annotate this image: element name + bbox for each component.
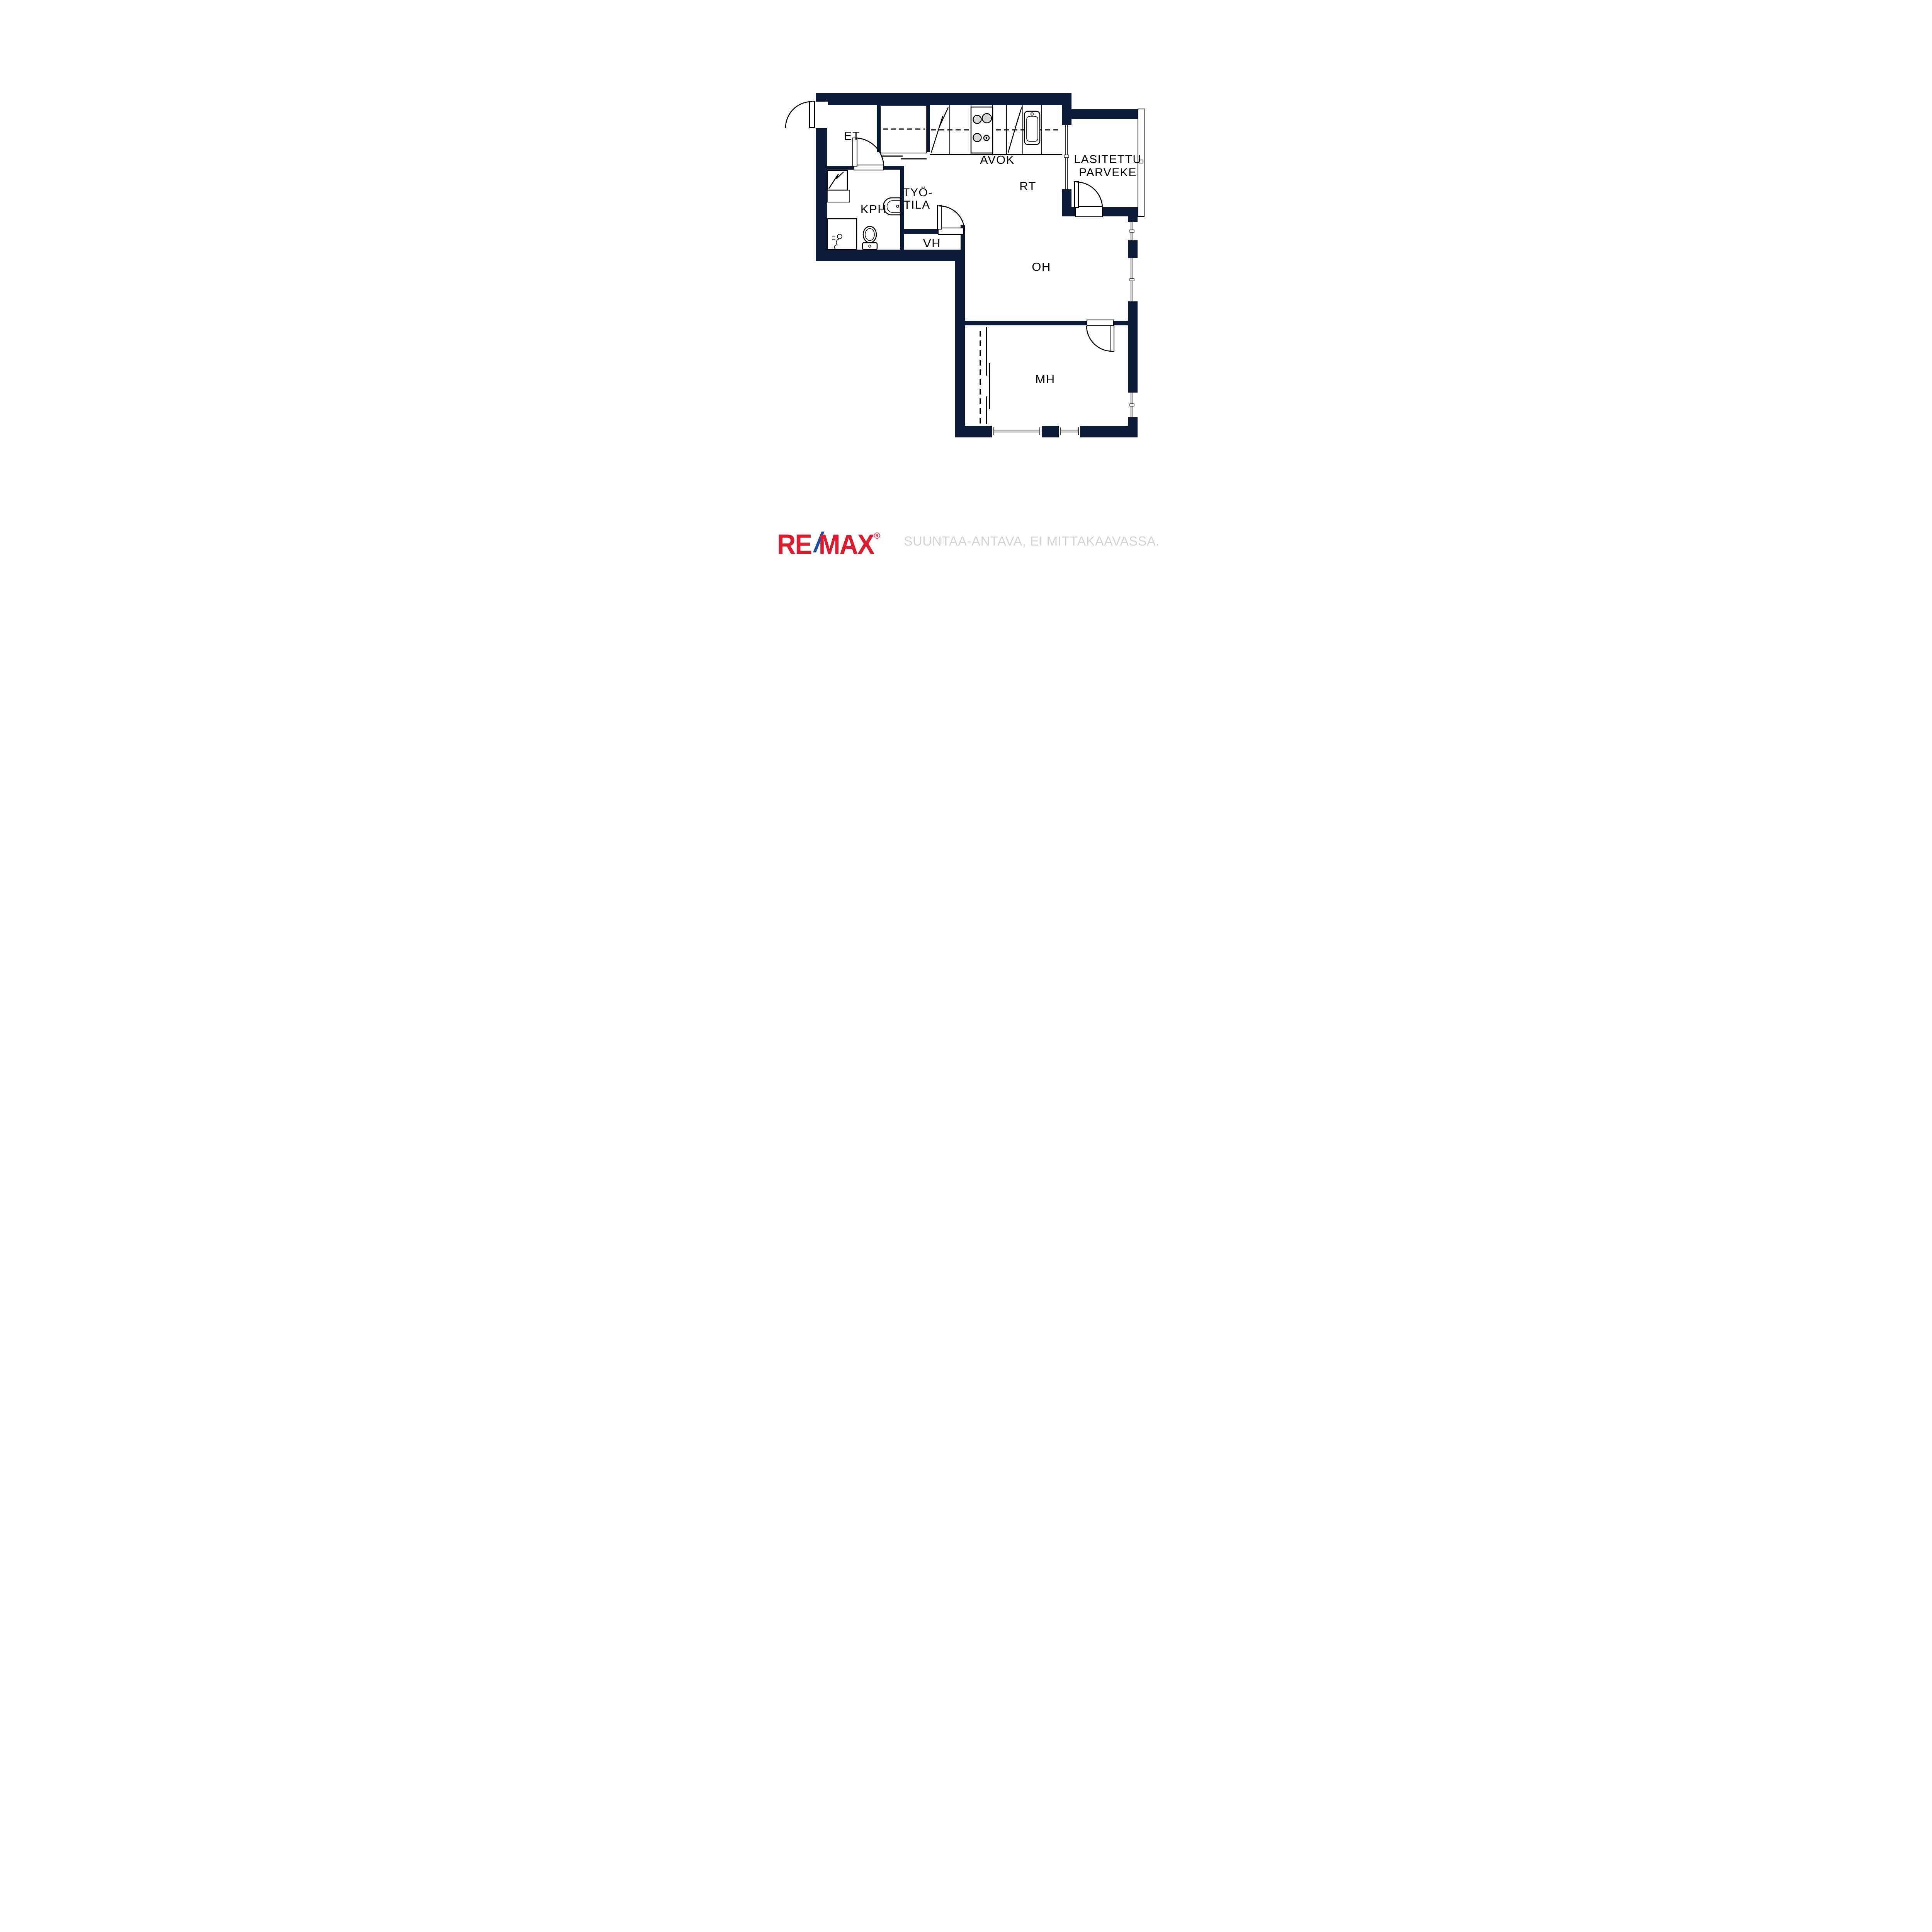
balcony-door-leaf <box>1075 182 1078 207</box>
stove-icon <box>971 107 993 153</box>
front-door <box>786 101 828 128</box>
front-door-gap <box>815 102 828 128</box>
toilet-icon <box>862 226 877 250</box>
balcony-door <box>1075 182 1102 217</box>
washing-machine-icon <box>827 170 850 202</box>
remax-logo: RE/MAX® <box>777 531 880 559</box>
mh-wardrobe <box>980 327 990 424</box>
floorplan-page: ET AVOK LASITETTU PARVEKE KPH TYÖ- TILA … <box>766 0 1166 565</box>
brand-registered-icon: ® <box>874 532 880 540</box>
window-mh-east <box>1126 393 1139 417</box>
window-balcony-west-tick <box>1064 155 1069 158</box>
window-balcony-west <box>1061 125 1072 189</box>
wall-balcony-west-lower <box>1062 189 1071 207</box>
room-label-rt: RT <box>1019 179 1036 193</box>
pillar-et-east <box>927 105 930 152</box>
wall-mh-south <box>955 426 1138 437</box>
floorplan-svg: ET AVOK LASITETTU PARVEKE KPH TYÖ- TILA … <box>766 0 1166 565</box>
mh-door-leaf <box>1110 326 1114 352</box>
room-label-parveke-line2: PARVEKE <box>1079 166 1136 179</box>
room-label-mh: MH <box>1035 372 1055 386</box>
wall-top <box>816 93 1071 105</box>
stove-burner-2 <box>982 114 992 123</box>
mh-door <box>1087 320 1114 352</box>
shower-outline <box>827 219 857 250</box>
pillar-et-west <box>877 105 880 152</box>
et-wardrobe <box>881 105 927 159</box>
room-label-vh: VH <box>923 236 941 250</box>
wall-west-step <box>955 250 965 437</box>
window-oh-a-tick <box>1130 230 1134 232</box>
disclaimer-text: SUUNTAA-ANTAVA, EI MITTAKAAVASSA. <box>904 534 1160 549</box>
wall-balcony-south <box>1062 207 1144 216</box>
mh-door-sill <box>1087 320 1113 326</box>
wall-left-upper <box>816 93 827 102</box>
mh-door-arc <box>1087 326 1112 351</box>
window-mh-south-1 <box>992 424 1042 439</box>
room-label-et: ET <box>844 129 861 143</box>
window-oh-b <box>1126 258 1139 301</box>
room-label-oh: OH <box>1032 260 1051 274</box>
washer-counter <box>827 190 850 202</box>
room-label-parveke-line1: LASITETTU <box>1074 153 1141 166</box>
window-oh-b-tick <box>1130 279 1134 281</box>
balcony-door-arc <box>1077 182 1102 207</box>
shower-icon <box>827 219 857 250</box>
sink-icon <box>1024 111 1040 145</box>
window-mh-east-tick <box>1130 404 1134 406</box>
vh-door-sill <box>938 228 963 235</box>
kph-door-sill <box>854 165 884 170</box>
toilet-tank <box>862 243 877 250</box>
wall-balcony-west-upper <box>1062 105 1071 125</box>
vh-door <box>937 205 964 235</box>
vh-door-leaf <box>937 205 941 229</box>
wall-balcony-north <box>1071 109 1139 119</box>
kitchen-counter <box>930 105 1062 155</box>
room-label-tyotila-line2: TILA <box>903 199 930 211</box>
room-label-tyotila-line1: TYÖ- <box>903 186 933 199</box>
room-label-kph: KPH <box>861 202 887 216</box>
brand-max: MAX <box>819 531 874 558</box>
stove-burner-4-dot <box>986 137 987 139</box>
room-label-avok: AVOK <box>980 153 1015 167</box>
balcony-door-sill <box>1075 206 1102 217</box>
brand-re: RE <box>777 531 811 558</box>
front-door-arc <box>786 102 812 128</box>
wall-left-lower <box>816 128 827 261</box>
window-mh-south-2-box <box>1059 424 1080 439</box>
window-mh-south-1-box <box>992 424 1042 439</box>
dishwasher-icon <box>1008 107 1022 153</box>
window-mh-south-2 <box>1059 424 1080 439</box>
front-door-leaf <box>810 101 815 128</box>
stove-burner-3 <box>973 134 981 142</box>
stove-burner-1 <box>973 116 981 124</box>
window-oh-a <box>1126 222 1139 240</box>
wall-kph-south <box>816 250 965 261</box>
